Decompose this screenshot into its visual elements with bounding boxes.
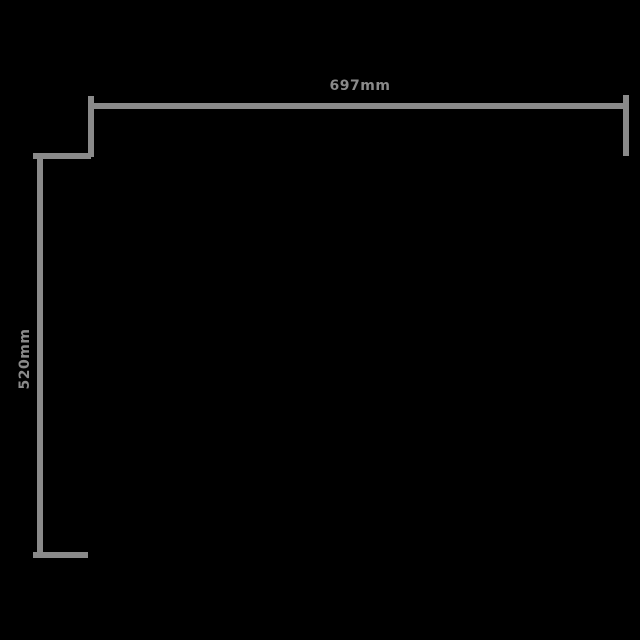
width-dimension-label: 697mm — [330, 79, 391, 93]
height-bottom-tick — [33, 552, 88, 558]
width-extension-bar-left — [88, 96, 94, 157]
width-extension-bar-right — [623, 95, 629, 156]
width-dimension-line — [91, 103, 627, 109]
height-dimension-line — [37, 155, 43, 557]
dimension-diagram: 697mm 520mm — [0, 0, 640, 640]
height-dimension-label: 520mm — [18, 329, 32, 390]
